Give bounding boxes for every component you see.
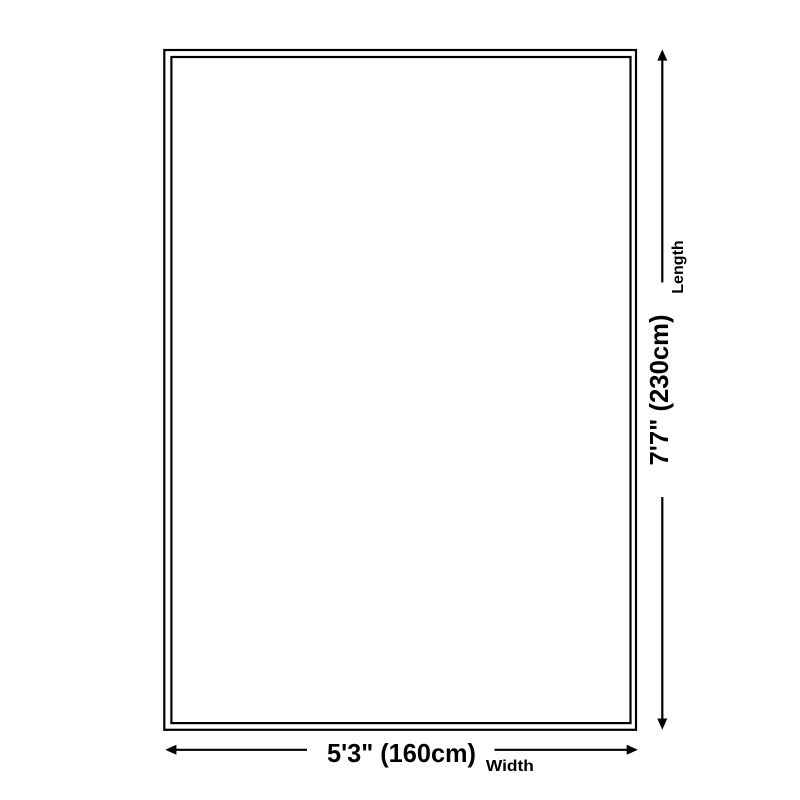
svg-text:7'7" (230cm): 7'7" (230cm)	[644, 315, 674, 466]
svg-text:Length: Length	[670, 240, 687, 294]
svg-text:5'3" (160cm): 5'3" (160cm)	[327, 738, 476, 768]
svg-text:Width: Width	[486, 758, 534, 775]
